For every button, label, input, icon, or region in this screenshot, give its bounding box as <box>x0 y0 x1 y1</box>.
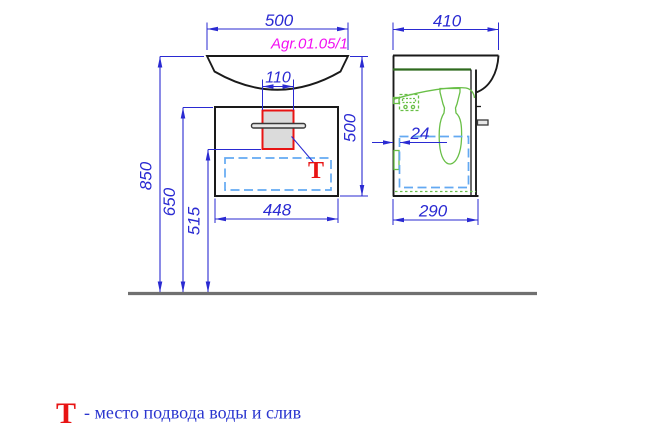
front-door-handle <box>252 124 306 129</box>
legend-description: - место подвода воды и слив <box>84 403 301 423</box>
dim-label-cabinet-width: 448 <box>263 201 292 220</box>
technical-drawing-canvas: Т 500 Agr.01.05/1 110 500 448 850 650 <box>0 0 666 444</box>
vanity-drawing-svg: Т 500 Agr.01.05/1 110 500 448 850 650 <box>0 0 666 444</box>
legend-symbol: Т <box>56 397 76 430</box>
dim-label-floor-basin-top: 850 <box>137 161 156 190</box>
drain-panel <box>263 111 294 150</box>
dim-label-front-height: 500 <box>341 113 360 142</box>
legend: Т - место подвода воды и слив <box>56 397 301 430</box>
front-view-dimensions: 500 Agr.01.05/1 110 500 448 850 650 515 <box>137 11 369 293</box>
bracket-screw-icon <box>404 105 407 108</box>
model-code-label: Agr.01.05/1 <box>270 36 348 53</box>
dim-label-floor-drain: 515 <box>185 206 204 235</box>
dim-label-floor-cabinet-top: 650 <box>160 187 179 216</box>
bracket-screw-icon <box>411 105 414 108</box>
arrowhead-icon <box>383 140 393 145</box>
dim-label-cabinet-depth: 290 <box>418 202 448 221</box>
dim-label-drain-unit-width: 110 <box>265 70 291 87</box>
basin-underside-profile <box>395 88 475 99</box>
side-door-handle <box>478 120 489 125</box>
wall-drain-pipe <box>394 151 399 170</box>
siphon-trap-outline <box>439 89 461 165</box>
side-basin-front-arc <box>476 56 499 93</box>
arrowhead-icon <box>400 140 410 145</box>
mounting-bracket-detail <box>403 99 416 103</box>
t-marker: Т <box>308 158 324 184</box>
side-view <box>393 56 499 197</box>
side-view-dimensions: 410 24 290 <box>372 12 499 226</box>
dim-label-wall-gap: 24 <box>410 124 430 143</box>
dim-label-basin-depth: 410 <box>433 12 462 31</box>
dim-label-basin-width: 500 <box>265 11 294 30</box>
